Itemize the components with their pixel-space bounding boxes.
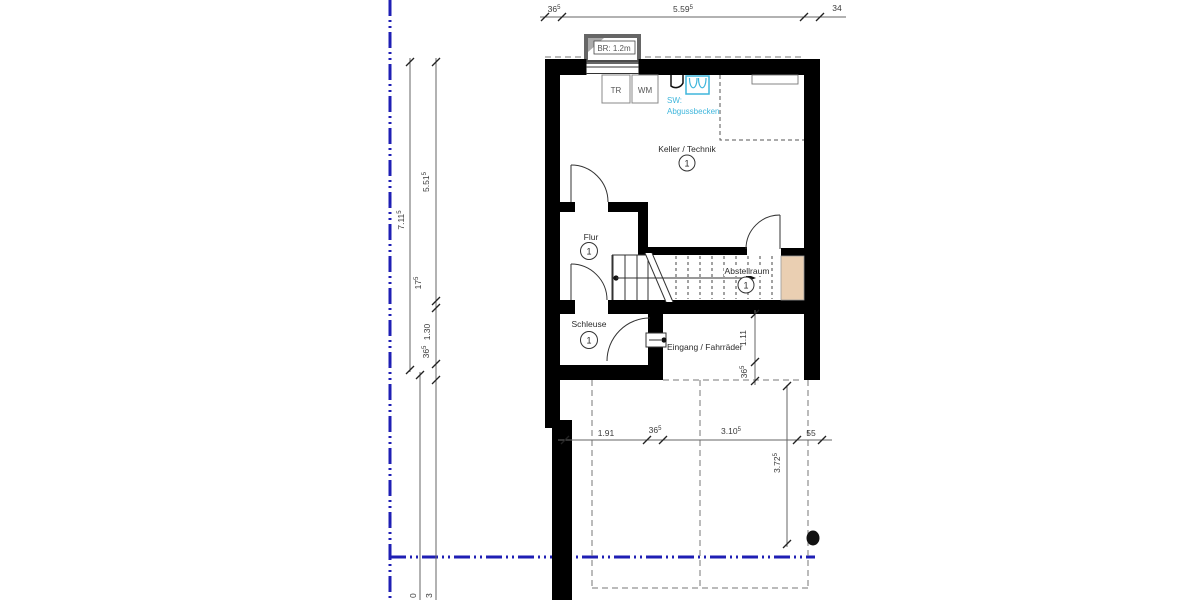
wall-niche <box>752 75 798 84</box>
dim-right-lower: 3.725 <box>772 452 782 473</box>
washer-label: WM <box>638 86 653 95</box>
dim-chain-bottom: 1.91 365 3.105 55 <box>558 425 832 444</box>
sink-label-line1: SW: <box>667 96 682 105</box>
entrance-door-pivot-dot <box>661 337 666 342</box>
dim-bottom-3: 3.105 <box>721 426 742 436</box>
dim-edge-fragment-2: 3 <box>424 593 434 598</box>
dim-left-outer: 7.115 <box>396 210 406 230</box>
ceiling-change-line <box>720 75 804 140</box>
floor-plan-drawing: BR: 1.2m TR WM SW: Abgussbecken <box>0 0 1200 600</box>
dim-right-upper-1: 1.11 <box>738 330 748 346</box>
window-jamb-right <box>639 59 643 75</box>
dim-chain-right: 1.11 365 3.725 <box>738 310 791 548</box>
room-label-keller: Keller / Technik <box>658 144 716 154</box>
dim-bottom-4: 55 <box>806 428 816 438</box>
keller-flur-wall-left-stub <box>557 202 575 212</box>
dim-right-upper-2: 365 <box>739 365 749 378</box>
dim-left-inner-2: 175 <box>413 276 423 289</box>
room-label-abstellraum: Abstellraum <box>725 266 770 276</box>
walls <box>545 59 820 600</box>
floor-plan-canvas: BR: 1.2m TR WM SW: Abgussbecken <box>0 0 1200 600</box>
dim-top-1: 365 <box>548 4 561 14</box>
stair-bottom-wall <box>608 300 820 314</box>
room-number-schleuse: 1 <box>586 336 591 346</box>
sink-label-line2: Abgussbecken <box>667 107 719 116</box>
flur-schleuse-door-swing <box>571 264 607 300</box>
room-label-flur: Flur <box>584 232 599 242</box>
dim-left-inner-1: 5.515 <box>421 171 431 192</box>
room-label-schleuse: Schleuse <box>572 319 607 329</box>
window-jamb-left <box>583 59 587 75</box>
dim-left-inner-4: 365 <box>421 345 431 358</box>
floor-drain-icon <box>671 75 683 88</box>
lightwell-shaft-right <box>781 256 804 300</box>
dim-left-inner-3: 1.30 <box>422 323 432 340</box>
column-dot <box>807 531 820 546</box>
dim-chain-top: 365 5.595 34 <box>540 3 846 21</box>
fixtures: TR WM SW: Abgussbecken <box>602 75 798 116</box>
entrance-label: Eingang / Fahrräder <box>667 342 743 352</box>
stairwell-top-wall <box>645 247 747 255</box>
abstellraum-door-swing <box>746 215 780 249</box>
dim-bottom-1: 1.91 <box>598 428 615 438</box>
room-number-abstellraum: 1 <box>743 281 748 291</box>
room-number-keller: 1 <box>684 159 689 169</box>
schleuse-bottom-wall <box>545 365 663 380</box>
dim-chain-left: 7.115 5.515 175 1.30 365 0 3 <box>396 58 440 600</box>
schleuse-right-wall-lower <box>648 347 663 380</box>
entrance-door-swing <box>607 318 650 361</box>
right-wall <box>804 59 820 380</box>
schleuse-right-wall-upper <box>648 314 663 333</box>
keller-flur-wall-right <box>608 202 648 212</box>
room-number-flur: 1 <box>586 247 591 257</box>
dim-edge-fragment-1: 0 <box>408 593 418 598</box>
dim-top-2: 5.595 <box>673 4 694 14</box>
keller-flur-door-swing <box>571 165 608 202</box>
left-lower-wall-strip <box>552 420 572 600</box>
lightwell-label: BR: 1.2m <box>597 44 631 53</box>
dim-bottom-2: 365 <box>649 425 662 435</box>
top-wall-right <box>640 59 820 75</box>
dryer-label: TR <box>611 86 622 95</box>
dim-top-3: 34 <box>832 3 842 13</box>
flur-schleuse-wall-stub <box>557 300 575 314</box>
top-window-lightwell: BR: 1.2m <box>583 36 642 75</box>
